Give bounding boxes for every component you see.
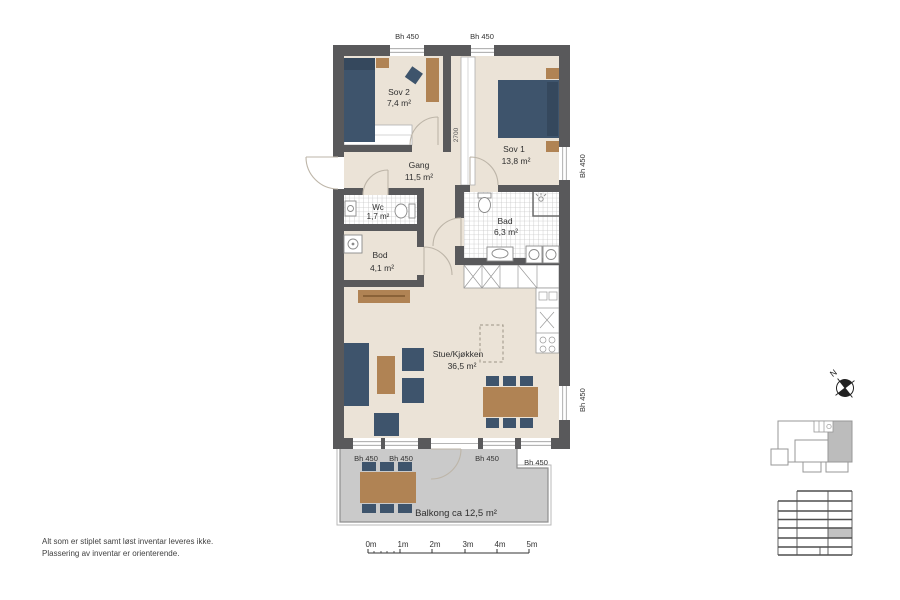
key-plan-stair-core xyxy=(814,421,833,432)
room-label-gang: Gang xyxy=(409,160,430,170)
dining-chair xyxy=(486,376,499,386)
room-area-wc: 1,7 m² xyxy=(367,212,390,221)
wc-sink xyxy=(345,201,356,216)
scale-tick-5: 5m xyxy=(526,540,537,549)
room-label-stue: Stue/Kjøkken xyxy=(433,349,484,359)
room-area-stue: 36,5 m² xyxy=(448,361,477,371)
room-area-gang: 11,5 m² xyxy=(405,172,433,182)
room-label-bod: Bod xyxy=(372,250,387,260)
scale-tick-0: 0m xyxy=(365,540,376,549)
scale-tick-2: 2m xyxy=(429,540,440,549)
balcony-chair xyxy=(362,504,376,513)
bh-label-top-2: Bh 450 xyxy=(470,32,494,41)
balcony-label: Balkong ca 12,5 m² xyxy=(415,508,497,519)
entry-door-opening xyxy=(333,157,344,189)
dining-chair xyxy=(520,376,533,386)
balcony-chair xyxy=(398,504,412,513)
bh-label-balcony-3: Bh 450 xyxy=(475,454,499,463)
floor-plan-drawing: Balkong ca 12,5 m² 1900 2700 xyxy=(0,0,900,600)
nightstand xyxy=(546,141,559,152)
north-label: N xyxy=(828,367,839,379)
bed-sov2 xyxy=(344,58,375,142)
scale-tick-3: 3m xyxy=(462,540,473,549)
disclaimer-line-2: Plassering av inventar er orienterende. xyxy=(42,549,179,558)
window xyxy=(390,45,424,56)
washer xyxy=(526,246,542,263)
armchair xyxy=(402,348,424,371)
balcony-chair xyxy=(398,462,412,471)
bod-water-heater xyxy=(344,235,362,253)
floor-plan-page: Balkong ca 12,5 m² 1900 2700 xyxy=(0,0,900,600)
side-table xyxy=(376,58,389,68)
balcony-table xyxy=(360,472,416,503)
window xyxy=(521,438,551,449)
bh-label-right-2: Bh 450 xyxy=(578,388,587,412)
balcony-chair xyxy=(362,462,376,471)
window xyxy=(559,147,570,180)
disclaimer: Alt som er stiplet samt løst inventar le… xyxy=(42,537,213,558)
scale-tick-1: 1m xyxy=(397,540,408,549)
wc-toilet xyxy=(409,204,415,218)
bh-label-balcony-2: Bh 450 xyxy=(389,454,413,463)
window xyxy=(471,45,494,56)
window xyxy=(559,386,570,420)
bh-label-balcony-1: Bh 450 xyxy=(354,454,378,463)
north-arrow: N xyxy=(821,362,862,405)
coffee-table xyxy=(377,356,395,394)
window xyxy=(353,438,381,449)
room-area-bod: 4,1 m² xyxy=(370,263,394,273)
key-plan xyxy=(771,421,852,472)
dining-table xyxy=(483,387,538,417)
dining-chair xyxy=(503,418,516,428)
bh-label-top-1: Bh 450 xyxy=(395,32,419,41)
dim-2700: 2700 xyxy=(453,127,460,142)
armchair xyxy=(374,413,399,436)
room-label-sov2: Sov 2 xyxy=(388,87,410,97)
dresser-sov2 xyxy=(426,58,439,102)
balcony-chair xyxy=(380,462,394,471)
dining-chair xyxy=(520,418,533,428)
window xyxy=(483,438,515,449)
scale-tick-4: 4m xyxy=(494,540,505,549)
bh-label-balcony-4: Bh 450 xyxy=(524,458,548,467)
bh-label-right-1: Bh 450 xyxy=(578,154,587,178)
room-area-bad: 6,3 m² xyxy=(494,227,518,237)
room-label-wc: Wc xyxy=(372,203,384,212)
room-label-bad: Bad xyxy=(497,216,512,226)
dining-chair xyxy=(503,376,516,386)
window xyxy=(385,438,418,449)
room-area-sov1: 13,8 m² xyxy=(502,156,531,166)
room-label-sov1: Sov 1 xyxy=(503,144,525,154)
balcony-chair xyxy=(380,504,394,513)
scale-bar: 0m 1m 2m 3m 4m 5m xyxy=(365,540,537,553)
nightstand xyxy=(546,68,559,79)
room-area-sov2: 7,4 m² xyxy=(387,98,411,108)
sofa xyxy=(340,343,369,406)
dining-chair xyxy=(486,418,499,428)
elevation-diagram xyxy=(778,491,852,555)
armchair xyxy=(402,378,424,403)
disclaimer-line-1: Alt som er stiplet samt løst inventar le… xyxy=(42,537,213,546)
elevation-highlighted-unit xyxy=(828,528,852,538)
dryer xyxy=(543,246,559,263)
